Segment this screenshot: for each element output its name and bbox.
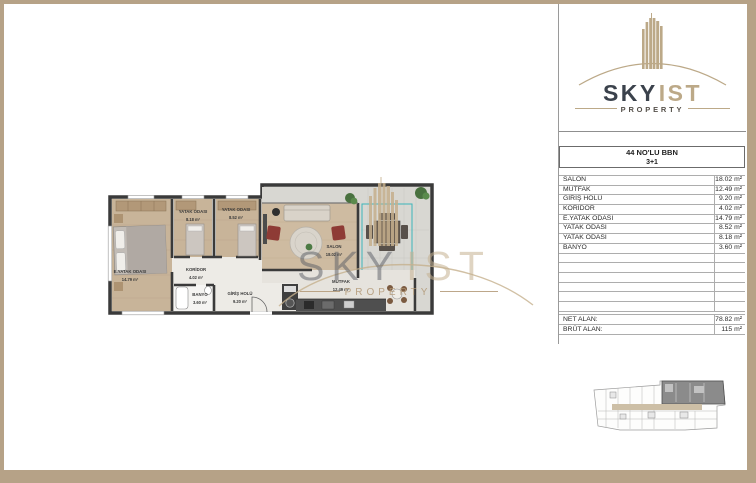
brochure-page: E.YATAK ODASI 14.79 m² YATAK ODASI 8.18 … <box>0 0 756 483</box>
room-name: E.YATAK ODASI <box>559 215 714 224</box>
table-row: YATAK ODASI 8.52 m² <box>559 224 745 234</box>
label-koridor: KORİDOR <box>186 267 207 272</box>
logo-property: PROPERTY <box>621 105 685 114</box>
table-row: GİRİŞ HOLÜ 9.20 m² <box>559 195 745 205</box>
unit-type: 3+1 <box>560 158 744 167</box>
net-area-value: 78.82 m² <box>714 315 745 324</box>
table-row: YATAK ODASI 8.18 m² <box>559 234 745 244</box>
corridor-band <box>612 404 702 410</box>
room-name: YATAK ODASI <box>559 234 714 243</box>
frame-right <box>747 0 756 483</box>
area-banyo: 3.60 m² <box>193 300 208 305</box>
room-name: YATAK ODASI <box>559 224 714 233</box>
floor-plan: E.YATAK ODASI 14.79 m² YATAK ODASI 8.18 … <box>0 0 560 483</box>
highlighted-unit-detail <box>665 384 673 392</box>
watermark-wordmark: SKYIST <box>297 243 491 289</box>
gross-area-row: BRÜT ALAN: 115 m² <box>559 325 745 335</box>
panel-divider <box>558 4 559 344</box>
logo-building-icon <box>642 13 663 69</box>
frame-top <box>0 0 756 4</box>
watermark-sky: SKY <box>297 243 400 289</box>
room-name: KORİDOR <box>559 205 714 214</box>
logo-sky: SKY <box>603 80 658 106</box>
label-banyo: BANYO <box>192 292 208 297</box>
room-name: SALON <box>559 176 714 185</box>
entrance-opening <box>250 311 272 314</box>
logo-wordmark: SKYIST <box>603 80 702 106</box>
table-row-empty <box>559 273 745 283</box>
gross-area-value: 115 m² <box>714 325 745 334</box>
area-yatak-mid: 8.18 m² <box>186 217 201 222</box>
area-giris: 9.20 m² <box>233 299 248 304</box>
watermark-property: PROPERTY <box>345 287 432 298</box>
room-area: 18.02 m² <box>714 176 745 185</box>
room-area: 9.20 m² <box>714 195 745 204</box>
table-row: BANYO 3.60 m² <box>559 244 745 254</box>
area-koridor: 4.02 m² <box>189 275 204 280</box>
label-eyatak: E.YATAK ODASI <box>114 269 147 274</box>
unit-title: 44 NO'LU BBN <box>560 147 744 158</box>
room-area: 12.49 m² <box>714 186 745 195</box>
net-area-row: NET ALAN: 78.82 m² <box>559 315 745 325</box>
room-area: 4.02 m² <box>714 205 745 214</box>
room-area: 3.60 m² <box>714 244 745 253</box>
frame-bottom <box>0 470 756 483</box>
area-eyatak: 14.79 m² <box>122 277 139 282</box>
room-area: 8.18 m² <box>714 234 745 243</box>
table-row-empty <box>559 292 745 302</box>
area-table: SALON 18.02 m² MUTFAK 12.49 m² GİRİŞ HOL… <box>559 175 745 312</box>
room-name: GİRİŞ HOLÜ <box>559 195 714 204</box>
table-row-empty <box>559 263 745 273</box>
key-plan <box>590 378 728 438</box>
frame-left <box>0 0 4 483</box>
table-row-empty <box>559 283 745 293</box>
table-row-empty <box>559 302 745 312</box>
table-row: SALON 18.02 m² <box>559 176 745 186</box>
logo-ist: IST <box>659 80 702 106</box>
logo: SKYIST PROPERTY <box>559 4 746 132</box>
label-giris: GİRİŞ HOLÜ <box>227 291 252 296</box>
highlighted-unit-detail <box>694 386 704 393</box>
gross-area-label: BRÜT ALAN: <box>559 325 714 334</box>
room-name: MUTFAK <box>559 186 714 195</box>
room-area: 8.52 m² <box>714 224 745 233</box>
table-row: MUTFAK 12.49 m² <box>559 186 745 196</box>
table-row: KORİDOR 4.02 m² <box>559 205 745 215</box>
label-yatak-right: YATAK ODASI <box>222 207 251 212</box>
watermark-ist: IST <box>406 243 491 289</box>
net-area-label: NET ALAN: <box>559 315 714 324</box>
logo-graphic: SKYIST PROPERTY <box>559 4 746 129</box>
table-row-empty <box>559 254 745 264</box>
unit-header: 44 NO'LU BBN 3+1 <box>559 146 745 168</box>
label-yatak-mid: YATAK ODASI <box>179 209 208 214</box>
room-name: BANYO <box>559 244 714 253</box>
room-area: 14.79 m² <box>714 215 745 224</box>
table-row: E.YATAK ODASI 14.79 m² <box>559 215 745 225</box>
area-yatak-right: 8.52 m² <box>229 215 244 220</box>
summary-table: NET ALAN: 78.82 m² BRÜT ALAN: 115 m² <box>559 314 745 335</box>
